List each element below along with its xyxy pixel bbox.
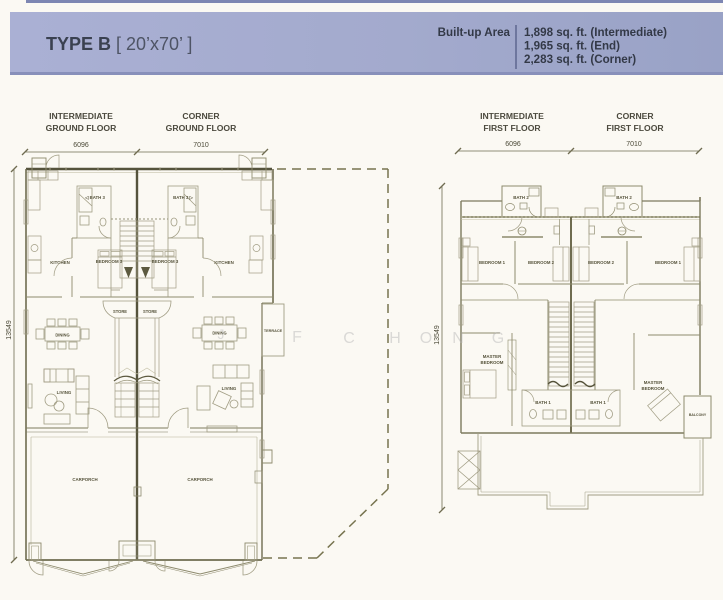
svg-text:GROUND FLOOR: GROUND FLOOR <box>166 123 237 133</box>
svg-text:TYPE B [ 20’x70’ ]: TYPE B [ 20’x70’ ] <box>46 34 192 54</box>
svg-text:BEDROOM 1: BEDROOM 1 <box>655 260 682 265</box>
svg-text:BALCONY: BALCONY <box>689 413 707 417</box>
svg-text:FIRST FLOOR: FIRST FLOOR <box>483 123 541 133</box>
svg-text:MASTER: MASTER <box>644 380 663 385</box>
svg-text:BEDROOM: BEDROOM <box>642 386 665 391</box>
svg-text:7010: 7010 <box>626 141 642 148</box>
svg-text:H: H <box>389 330 401 347</box>
svg-text:CARPORCH: CARPORCH <box>72 477 97 482</box>
svg-text:STORE: STORE <box>143 309 157 314</box>
svg-text:BEDROOM 1: BEDROOM 1 <box>479 260 506 265</box>
svg-text:G: G <box>492 330 504 347</box>
svg-text:CORNER: CORNER <box>182 111 220 121</box>
svg-text:13549: 13549 <box>434 325 441 345</box>
svg-text:BATH 1: BATH 1 <box>590 400 606 405</box>
svg-text:F: F <box>292 329 302 346</box>
svg-text:STORE: STORE <box>113 309 127 314</box>
svg-text:LIVING: LIVING <box>57 390 72 395</box>
svg-text:DINING: DINING <box>55 333 69 338</box>
svg-text:BATH 1: BATH 1 <box>535 400 551 405</box>
svg-text:Built-up Area: Built-up Area <box>438 26 511 39</box>
svg-text:◁ BATH 3: ◁ BATH 3 <box>84 195 105 200</box>
svg-text:6096: 6096 <box>505 141 521 148</box>
svg-text:BEDROOM: BEDROOM <box>481 360 504 365</box>
svg-text:LIVING: LIVING <box>222 386 237 391</box>
svg-text:KITCHEN: KITCHEN <box>214 260 234 265</box>
svg-text:6096: 6096 <box>73 142 89 149</box>
svg-text:BATH 2: BATH 2 <box>513 195 529 200</box>
svg-text:INTERMEDIATE: INTERMEDIATE <box>480 111 544 121</box>
svg-text:BATH 3 ▷: BATH 3 ▷ <box>173 195 193 200</box>
svg-text:N: N <box>452 330 464 347</box>
svg-text:7010: 7010 <box>193 142 209 149</box>
svg-text:J: J <box>218 326 225 342</box>
svg-text:1,965 sq. ft. (End): 1,965 sq. ft. (End) <box>524 40 620 53</box>
svg-text:FIRST FLOOR: FIRST FLOOR <box>606 123 664 133</box>
svg-text:1,898 sq. ft. (Intermediate): 1,898 sq. ft. (Intermediate) <box>524 26 667 39</box>
svg-text:MASTER: MASTER <box>483 354 502 359</box>
svg-text:CARPORCH: CARPORCH <box>187 477 212 482</box>
svg-text:BEDROOM 3: BEDROOM 3 <box>96 259 123 264</box>
svg-text:2,283 sq. ft. (Corner): 2,283 sq. ft. (Corner) <box>524 53 636 66</box>
svg-text:O: O <box>420 330 432 347</box>
svg-text:TERRACE: TERRACE <box>264 329 283 333</box>
svg-text:BEDROOM 3: BEDROOM 3 <box>152 259 179 264</box>
svg-text:BEDROOM 2: BEDROOM 2 <box>588 260 615 265</box>
svg-text:13549: 13549 <box>6 320 13 340</box>
svg-text:BATH 2: BATH 2 <box>616 195 632 200</box>
svg-text:C: C <box>343 330 355 347</box>
svg-text:GROUND FLOOR: GROUND FLOOR <box>46 123 117 133</box>
svg-text:BEDROOM 2: BEDROOM 2 <box>528 260 555 265</box>
svg-text:INTERMEDIATE: INTERMEDIATE <box>49 111 113 121</box>
svg-text:CORNER: CORNER <box>616 111 654 121</box>
